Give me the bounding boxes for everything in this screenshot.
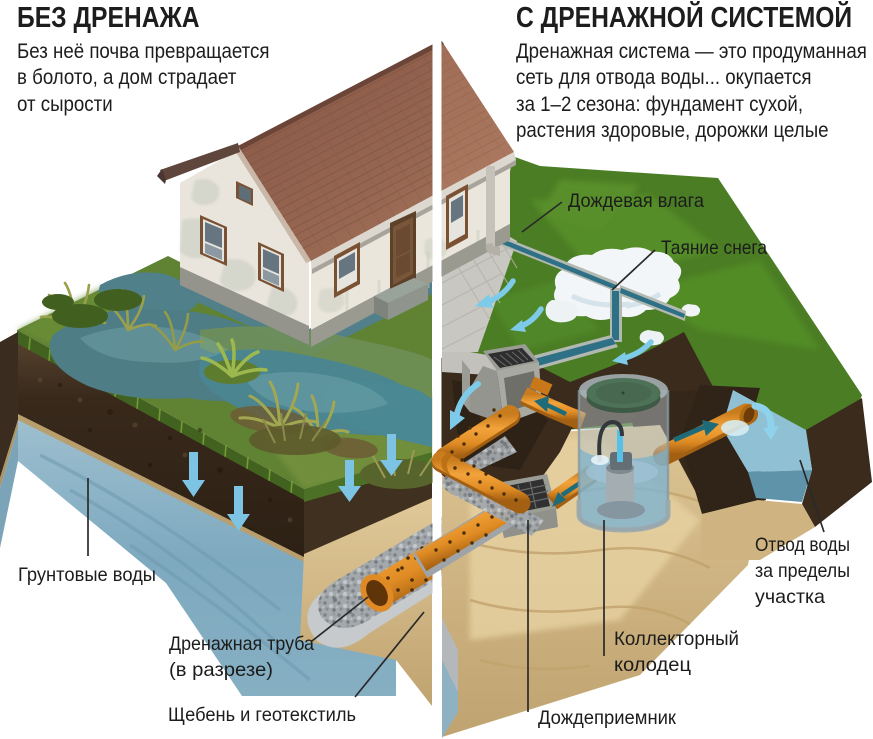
svg-text:Коллекторный: Коллекторный	[614, 628, 739, 650]
svg-text:(в разрезе): (в разрезе)	[169, 659, 273, 681]
svg-text:Дренажная труба: Дренажная труба	[169, 633, 314, 655]
svg-text:Дождеприемник: Дождеприемник	[538, 707, 676, 729]
svg-text:за пределы: за пределы	[755, 560, 850, 582]
svg-text:Дождевая влага: Дождевая влага	[568, 190, 704, 212]
svg-text:Щебень и геотекстиль: Щебень и геотекстиль	[168, 704, 356, 726]
svg-text:Отвод воды: Отвод воды	[755, 534, 850, 556]
svg-text:колодец: колодец	[614, 654, 691, 676]
svg-text:Грунтовые воды: Грунтовые воды	[18, 564, 156, 586]
svg-text:Таяние снега: Таяние снега	[661, 237, 767, 259]
svg-text:участка: участка	[755, 586, 825, 608]
